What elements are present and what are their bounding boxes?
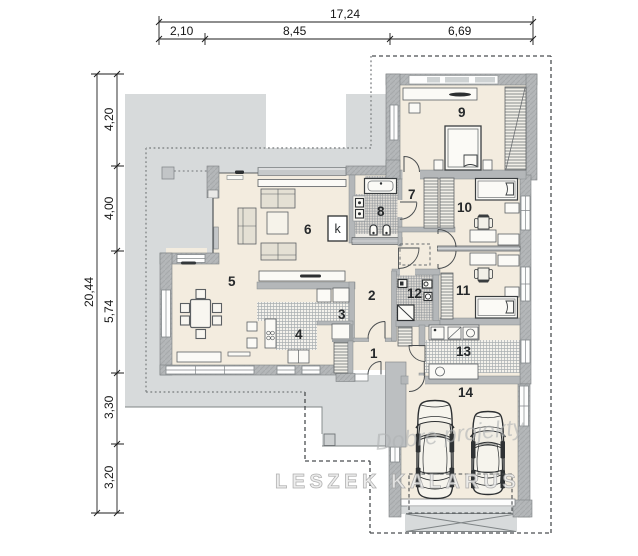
svg-text:9: 9 [458,105,466,120]
svg-text:3,20: 3,20 [102,465,116,489]
svg-text:2,10: 2,10 [170,24,194,38]
svg-text:3: 3 [338,307,346,322]
svg-text:7: 7 [408,187,416,202]
svg-text:6: 6 [304,222,312,237]
svg-text:12: 12 [407,286,422,301]
svg-text:8,45: 8,45 [283,24,307,38]
svg-text:LESZEK KALARUS: LESZEK KALARUS [275,471,520,493]
svg-text:4: 4 [295,327,303,342]
svg-text:2: 2 [368,288,376,303]
svg-text:6,69: 6,69 [448,24,472,38]
svg-text:4,20: 4,20 [102,107,116,131]
svg-text:k: k [335,222,342,236]
svg-text:20,44: 20,44 [82,277,96,307]
svg-text:3,30: 3,30 [102,395,116,419]
svg-text:10: 10 [457,200,472,215]
svg-text:14: 14 [458,385,474,400]
svg-text:13: 13 [456,344,472,359]
svg-text:5: 5 [228,274,236,289]
svg-text:1: 1 [370,346,378,361]
svg-text:5,74: 5,74 [102,299,116,323]
svg-text:11: 11 [456,283,471,298]
svg-text:4,00: 4,00 [102,196,116,220]
svg-text:8: 8 [377,204,385,219]
svg-text:17,24: 17,24 [330,7,360,21]
